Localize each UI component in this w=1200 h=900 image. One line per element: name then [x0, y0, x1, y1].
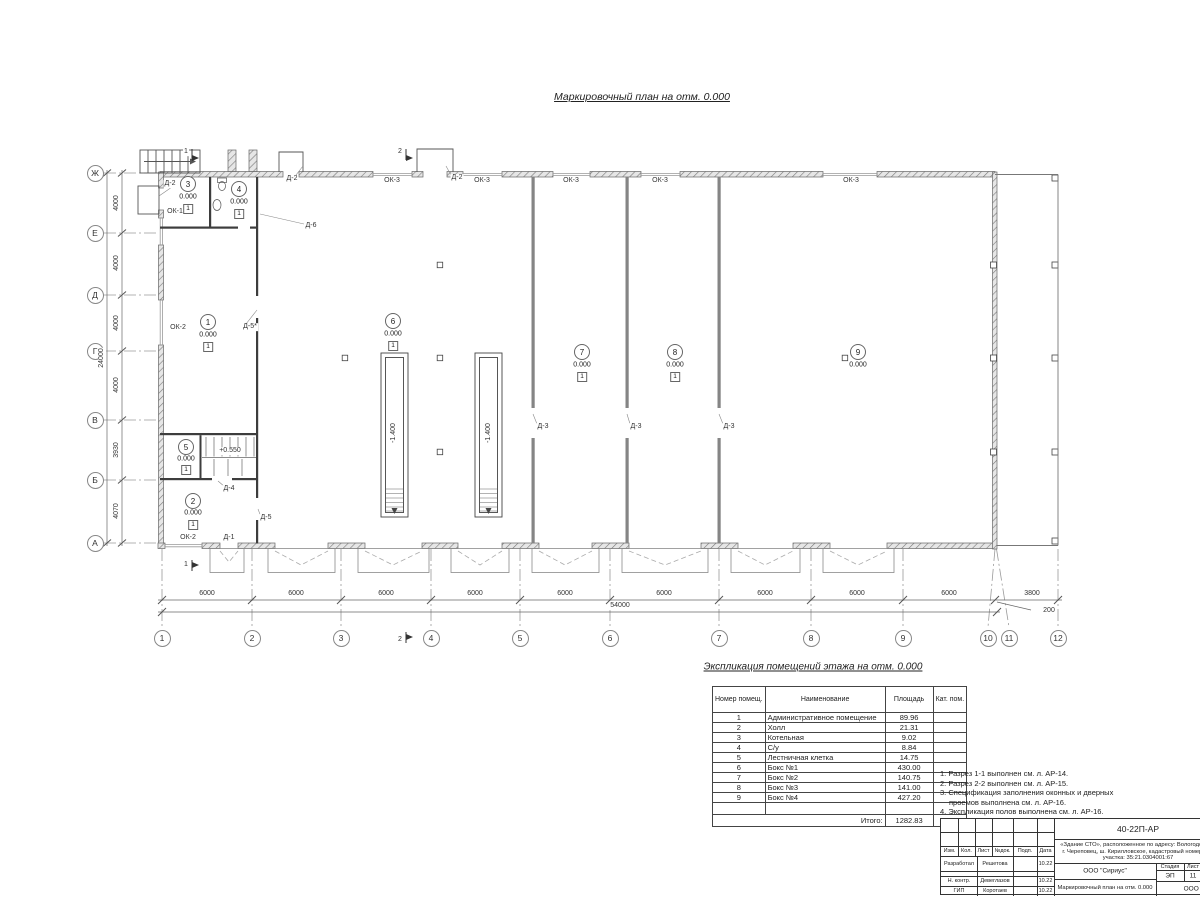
room-number: 1: [206, 318, 210, 327]
axis-label: Б: [92, 475, 98, 485]
room-elevation: 0.000: [198, 332, 218, 339]
pit-depth-label: -1.400: [485, 422, 493, 444]
cell-area: 140.75: [885, 773, 933, 783]
axis-label: 8: [809, 633, 814, 643]
room-number: 2: [191, 497, 195, 506]
room-tag: 5: [178, 439, 194, 455]
table-row: 6Бокс №1430.00: [713, 763, 967, 773]
cell-num: 7: [713, 773, 766, 783]
stage-value: ЭП: [1165, 872, 1174, 879]
axis-bubble-row: Ж: [87, 165, 104, 182]
table-row: 9Бокс №4427.20: [713, 793, 967, 803]
dimension-ticks: [103, 170, 1062, 617]
dimension-label: 6000: [198, 590, 216, 598]
cell-name: Административное помещение: [765, 713, 885, 723]
cell-num: 3: [713, 733, 766, 743]
door-mark: Д-6: [305, 222, 318, 230]
inspection-pits: [381, 353, 502, 517]
axis-bubble-col: 12: [1050, 630, 1067, 647]
cell-cat: [933, 723, 967, 733]
partition-walls: [532, 177, 721, 544]
room-elevation: 0.000: [178, 194, 198, 201]
cell-num: 2: [713, 723, 766, 733]
organization-name-2: ООО "Аль: [1184, 885, 1200, 892]
axis-bubble-col: 3: [333, 630, 350, 647]
cell-cat: [933, 733, 967, 743]
room-number: 3: [186, 180, 190, 189]
explication-table: Номер помещ. Наименование Площадь Кат. п…: [712, 686, 967, 827]
door-mark: Д-3: [537, 423, 550, 431]
floor-type-box: 1: [203, 342, 213, 352]
col-header-name: Наименование: [765, 687, 885, 713]
drawing-sheet: Маркировочный план на отм. 0.000 Ж Е Д Г…: [0, 0, 1200, 900]
axis-bubble-row: В: [87, 412, 104, 429]
axis-bubble-col: 7: [711, 630, 728, 647]
section-mark: 1: [183, 148, 189, 156]
window-mark: ОК-3: [651, 177, 669, 185]
organization-name: ООО "Сириус": [1083, 868, 1127, 875]
room-number: 5: [184, 443, 188, 452]
cell-name: Бокс №2: [765, 773, 885, 783]
axis-label: 3: [339, 633, 344, 643]
window-mark: ОК-2: [179, 534, 197, 542]
door-mark: Д-2: [451, 174, 464, 182]
col-header-num: Номер помещ.: [713, 687, 766, 713]
axis-bubble-col: 2: [244, 630, 261, 647]
floor-type-box: 1: [183, 204, 193, 214]
room-tag: 1: [200, 314, 216, 330]
header-date: Дата: [1039, 848, 1051, 854]
axis-bubble-col: 10: [980, 630, 997, 647]
cell-area: 430.00: [885, 763, 933, 773]
cell-num: 8: [713, 783, 766, 793]
cell-num: 5: [713, 753, 766, 763]
total-label: Итого:: [713, 815, 886, 827]
dimension-label: 3930: [113, 441, 121, 459]
room-elevation: 0.000: [183, 510, 203, 517]
cell-cat: [933, 713, 967, 723]
cell-name: Котельная: [765, 733, 885, 743]
axis-label: 10: [983, 633, 992, 643]
axis-bubble-col: 9: [895, 630, 912, 647]
room-tag: 4: [231, 181, 247, 197]
drawing-title: Маркировочный план на отм. 0.000: [1058, 885, 1153, 891]
door-mark: Д-3: [723, 423, 736, 431]
cell-area: 9.02: [885, 733, 933, 743]
axis-label: 9: [901, 633, 906, 643]
header-doc: №док.: [994, 848, 1010, 854]
axis-lines: [104, 173, 1058, 627]
stair-steps: [202, 437, 256, 476]
note-line: 1. Разрез 1-1 выполнен см. л. АР-14.: [940, 769, 1113, 779]
room-number: 8: [673, 348, 677, 357]
col-header-cat: Кат. пом.: [933, 687, 967, 713]
col-header-area: Площадь: [885, 687, 933, 713]
table-total-row: Итого: 1282.83: [713, 815, 967, 827]
note-line: проемов выполнена см. л. АР-16.: [940, 798, 1113, 808]
header-list: Лист: [978, 848, 990, 854]
room-elevation: 0.000: [665, 362, 685, 369]
window-glazing: [160, 173, 877, 546]
window-mark: ОК-3: [842, 177, 860, 185]
cell-area: 14.75: [885, 753, 933, 763]
cell-name: Бокс №4: [765, 793, 885, 803]
person-name: Решетова: [982, 861, 1007, 867]
axis-bubble-col: 8: [803, 630, 820, 647]
axis-label: 5: [518, 633, 523, 643]
list-value: 11: [1190, 872, 1197, 879]
room-elevation: 0.000: [176, 456, 196, 463]
table-row: 2Холл21.31: [713, 723, 967, 733]
cell-area: 8.84: [885, 743, 933, 753]
table-row: 7Бокс №2140.75: [713, 773, 967, 783]
dimension-label: 4000: [113, 194, 121, 212]
floor-type-box: 1: [388, 341, 398, 351]
axis-bubble-col: 5: [512, 630, 529, 647]
axis-label: 1: [160, 633, 165, 643]
axis-label: В: [92, 415, 98, 425]
title-block: 40-22П-АР «Здание СТО», расположенное по…: [940, 818, 1200, 895]
room-elevation: 0.000: [383, 331, 403, 338]
axis-label: 11: [1005, 633, 1014, 643]
toilet-icon: [218, 178, 227, 191]
axis-bubble-row: А: [87, 535, 104, 552]
axis-label: Д: [92, 290, 98, 300]
table-row: 1Административное помещение89.96: [713, 713, 967, 723]
notes: 1. Разрез 1-1 выполнен см. л. АР-14. 2. …: [940, 769, 1113, 817]
dimension-label: 6000: [940, 590, 958, 598]
cell-num: 6: [713, 763, 766, 773]
door-mark: Д-1: [223, 534, 236, 542]
axis-label: 6: [608, 633, 613, 643]
window-mark: ОК-3: [473, 177, 491, 185]
door-mark: Д-4: [223, 485, 236, 493]
floor-type-box: 1: [181, 465, 191, 475]
cell-name: Бокс №3: [765, 783, 885, 793]
cell-area: 141.00: [885, 783, 933, 793]
room-elevation: 0.000: [848, 362, 868, 369]
gate-swings: [220, 551, 887, 565]
table-row: 5Лестничная клетка14.75: [713, 753, 967, 763]
table-header-row: Номер помещ. Наименование Площадь Кат. п…: [713, 687, 967, 713]
sink-icon: [213, 200, 221, 211]
cell-name: Бокс №1: [765, 763, 885, 773]
axis-label: 7: [717, 633, 722, 643]
door-mark: Д-3: [630, 423, 643, 431]
dimension-label: 24000: [98, 347, 106, 368]
axis-label: 4: [429, 633, 434, 643]
floor-type-box: 1: [577, 372, 587, 382]
person-name: Коротаев: [983, 888, 1007, 894]
header-sign: Подп.: [1018, 848, 1033, 854]
axis-label: Ж: [91, 168, 99, 178]
table-spacer-row: [713, 803, 967, 815]
section-mark: 2: [397, 148, 403, 156]
person-name: Девеглазов: [980, 878, 1009, 884]
axis-bubble-col: 1: [154, 630, 171, 647]
section-mark: 2: [397, 636, 403, 644]
note-line: 2. Разрез 2-2 выполнен см. л. АР-15.: [940, 779, 1113, 789]
room-number: 6: [391, 317, 395, 326]
cell-cat: [933, 743, 967, 753]
table-row: 8Бокс №3141.00: [713, 783, 967, 793]
cell-name: С/у: [765, 743, 885, 753]
table-row: 3Котельная9.02: [713, 733, 967, 743]
door-mark: Д-2: [164, 180, 177, 188]
axis-label: А: [92, 538, 98, 548]
dimension-label: 4000: [113, 314, 121, 332]
axis-label: Е: [92, 228, 98, 238]
dimension-label: 3800: [1023, 590, 1041, 598]
cell-name: Лестничная клетка: [765, 753, 885, 763]
door-mark: Д-5: [260, 514, 273, 522]
room-tag: 6: [385, 313, 401, 329]
axis-bubble-row: Б: [87, 472, 104, 489]
dimension-label: 6000: [377, 590, 395, 598]
stage-label: Стадия: [1161, 864, 1180, 870]
room-elevation: 0.000: [572, 362, 592, 369]
project-description: «Здание СТО», расположенное по адресу: В…: [1060, 842, 1200, 848]
dimension-label: 6000: [756, 590, 774, 598]
dimension-label: 6000: [556, 590, 574, 598]
axis-bubble-col: 11: [1001, 630, 1018, 647]
admin-walls: [160, 177, 258, 544]
room-number: 9: [856, 348, 860, 357]
axis-label: 2: [250, 633, 255, 643]
axis-bubble-row: Д: [87, 287, 104, 304]
cell-num: 1: [713, 713, 766, 723]
window-mark: ОК-1: [166, 208, 184, 216]
section-mark: 1: [183, 561, 189, 569]
role-label: ГИП: [954, 888, 965, 894]
cell-cat: [933, 753, 967, 763]
axis-bubble-row: Е: [87, 225, 104, 242]
dimension-label: 6000: [655, 590, 673, 598]
room-tag: 3: [180, 176, 196, 192]
note-line: 3. Спецификация заполнения оконных и две…: [940, 788, 1113, 798]
project-description: г. Череповец, ш. Кирилловское, кадастров…: [1062, 849, 1200, 855]
room-elevation: 0.000: [229, 199, 249, 206]
project-description: участка: 35:21.0304001:67: [1103, 855, 1174, 861]
window-mark: ОК-3: [383, 177, 401, 185]
room-tag: 2: [185, 493, 201, 509]
door-mark: Д-2: [286, 175, 299, 183]
header-izm: Изм.: [944, 848, 956, 854]
explication-title: Экспликация помещений этажа на отм. 0.00…: [704, 662, 923, 673]
floor-type-box: 1: [188, 520, 198, 530]
dimension-label: 4000: [113, 254, 121, 272]
cell-area: 427.20: [885, 793, 933, 803]
dimension-label: 6000: [848, 590, 866, 598]
room-tag: 9: [850, 344, 866, 360]
room-tag: 7: [574, 344, 590, 360]
pit-depth-label: -1.400: [390, 422, 398, 444]
sheet-title: Маркировочный план на отм. 0.000: [554, 91, 730, 103]
cell-name: Холл: [765, 723, 885, 733]
window-mark: ОК-3: [562, 177, 580, 185]
cell-area: 21.31: [885, 723, 933, 733]
room-tag: 8: [667, 344, 683, 360]
role-label: Н. контр.: [948, 878, 971, 884]
axis-label: Г: [93, 346, 98, 356]
room-number: 7: [580, 348, 584, 357]
dimension-label: 4070: [113, 502, 121, 520]
stair-elevation-label: +0.550: [218, 447, 242, 455]
axis-bubble-col: 4: [423, 630, 440, 647]
floor-type-box: 1: [234, 209, 244, 219]
columns: [342, 175, 1058, 544]
axis-label: 12: [1053, 633, 1062, 643]
dimension-label: 4000: [113, 376, 121, 394]
cell-num: 4: [713, 743, 766, 753]
dimension-label: 6000: [287, 590, 305, 598]
cell-area: 89.96: [885, 713, 933, 723]
floor-type-box: 1: [670, 372, 680, 382]
sign-date: 10.22: [1039, 888, 1053, 894]
door-mark: Д-5*: [242, 323, 258, 331]
role-label: Разработал: [944, 861, 974, 867]
axis-bubble-col: 6: [602, 630, 619, 647]
total-value: 1282.83: [885, 815, 933, 827]
room-number: 4: [237, 185, 241, 194]
window-mark: ОК-2: [169, 324, 187, 332]
dimension-label: 54000: [609, 602, 630, 610]
dimension-label: 6000: [466, 590, 484, 598]
cell-num: 9: [713, 793, 766, 803]
open-bay-outline: [995, 175, 1058, 546]
document-code: 40-22П-АР: [1117, 824, 1159, 834]
sign-date: 10.22: [1039, 861, 1053, 867]
list-label: Лист: [1187, 864, 1199, 870]
header-kol: Кол.: [961, 848, 972, 854]
dimension-label: 200: [1042, 607, 1056, 615]
table-row: 4С/у8.84: [713, 743, 967, 753]
pit-ladders: [386, 489, 497, 511]
note-line: 4. Экспликация полов выполнена см. л. АР…: [940, 807, 1113, 817]
sign-date: 10.22: [1039, 878, 1053, 884]
